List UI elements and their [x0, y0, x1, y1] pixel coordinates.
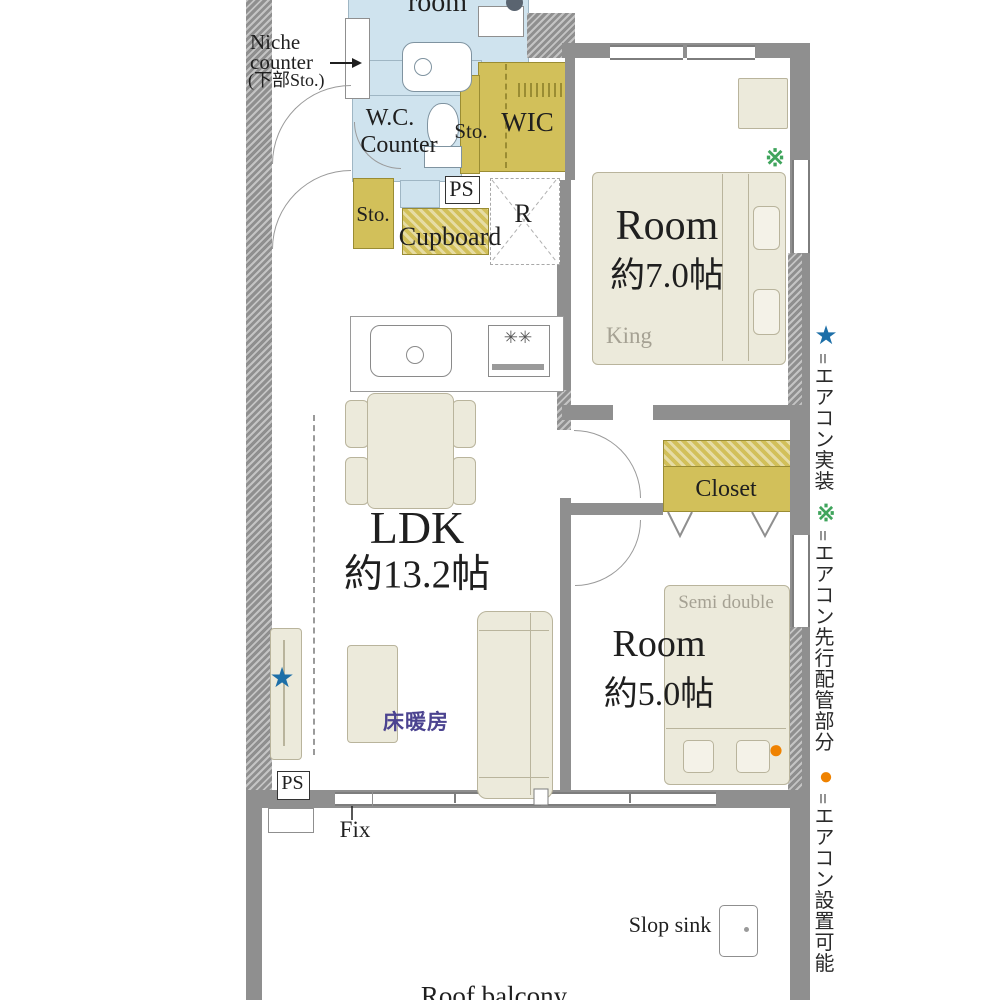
- sofa-line-top: [479, 630, 549, 631]
- stove-grill-bar: [492, 364, 544, 370]
- wic-label: WIC: [480, 108, 575, 138]
- dining-table: [367, 393, 454, 509]
- ps-top-label: PS: [445, 177, 478, 201]
- wc-label-1: W.C.: [350, 105, 430, 131]
- fix-label: Fix: [330, 817, 380, 842]
- wic-hanger-band: [518, 83, 565, 97]
- legend-circle-text: =エアコン設置可能: [812, 793, 832, 998]
- room7-name-label: Room: [567, 203, 767, 249]
- room5-door-arc: [575, 520, 641, 586]
- fridge-label: R: [508, 200, 538, 229]
- stove-burners-icon: ✳✳: [490, 329, 546, 348]
- washbasin: [402, 42, 472, 92]
- right-wall-hatch-1: [788, 253, 802, 420]
- ps-bottom-label: PS: [277, 772, 308, 794]
- wc-floor-notch: [400, 180, 440, 208]
- room7-bottom-wall: [562, 405, 810, 420]
- wc-label-2: Counter: [344, 132, 454, 158]
- closet-label: Closet: [663, 476, 789, 502]
- ldk-size-label: 約13.2帖: [317, 554, 517, 597]
- legend-asterisk-text: =エアコン先行配管部分: [812, 530, 832, 775]
- roof-balcony-label: Roof balcony: [394, 982, 594, 1000]
- room5-size-label: 約5.0帖: [559, 676, 759, 713]
- dining-chair: [452, 457, 476, 505]
- fix-window: [335, 792, 372, 806]
- hall-door-arc: [272, 85, 351, 164]
- aircon-prepiped-marker: ※: [760, 146, 790, 172]
- sofa: [477, 611, 553, 799]
- dining-chair: [452, 400, 476, 448]
- room7-door-opening: [613, 405, 653, 420]
- sofa-backrest-line: [530, 613, 531, 795]
- sofa-line-bottom: [479, 777, 549, 778]
- semi-bed-divider: [666, 728, 786, 729]
- room7-side-window: [792, 160, 810, 253]
- dining-chair: [345, 400, 369, 448]
- king-pillow: [753, 289, 780, 335]
- legend-circle-icon: ●: [810, 764, 842, 790]
- semi-pillow: [683, 740, 714, 773]
- floor-plan: ✳✳ ★ ※: [0, 0, 1000, 1000]
- room5-balcony-window: [548, 792, 716, 806]
- ldk-name-label: LDK: [317, 503, 517, 554]
- powder-room-partial-label: room: [390, 0, 485, 19]
- balcony-left-wall: [246, 808, 262, 1000]
- floor-heating-label: 床暖房: [380, 711, 452, 734]
- room7-desk: [738, 78, 788, 129]
- room7-bed-label: King: [606, 323, 676, 348]
- slop-sink-label: Slop sink: [620, 913, 720, 937]
- room5-top-wall: [560, 503, 663, 515]
- right-wall-hatch-2: [788, 627, 802, 790]
- room7-top-window-2: [687, 45, 755, 60]
- room7-top-wall: [562, 43, 810, 58]
- dining-chair: [345, 457, 369, 505]
- room7-size-label: 約7.0帖: [567, 257, 767, 296]
- closet-upper-band: [663, 440, 791, 469]
- washbasin-faucet: [414, 58, 432, 76]
- flooring-boundary-dashed: [313, 415, 315, 755]
- sink-drain: [406, 346, 424, 364]
- room5-side-window: [792, 535, 810, 627]
- hall-door-arc: [272, 170, 351, 249]
- slop-sink-basin: [719, 905, 758, 957]
- slop-sink-drain: [744, 927, 749, 932]
- cupboard-label: Cupboard: [380, 223, 520, 252]
- corridor-door-arc: [574, 430, 641, 498]
- ac-outdoor-unit: [268, 808, 314, 833]
- legend-star-text: =エアコン実装: [812, 353, 832, 513]
- legend-asterisk-icon: ※: [810, 501, 842, 526]
- niche-counter-label-3: (下部Sto.): [248, 71, 348, 91]
- room5-bed-label: Semi double: [664, 593, 788, 614]
- room7-top-window-1: [610, 45, 683, 60]
- legend-star-icon: ★: [810, 322, 842, 351]
- aircon-installed-marker: ★: [266, 664, 298, 695]
- aircon-possible-marker: ●: [760, 736, 792, 765]
- room5-name-label: Room: [559, 624, 759, 666]
